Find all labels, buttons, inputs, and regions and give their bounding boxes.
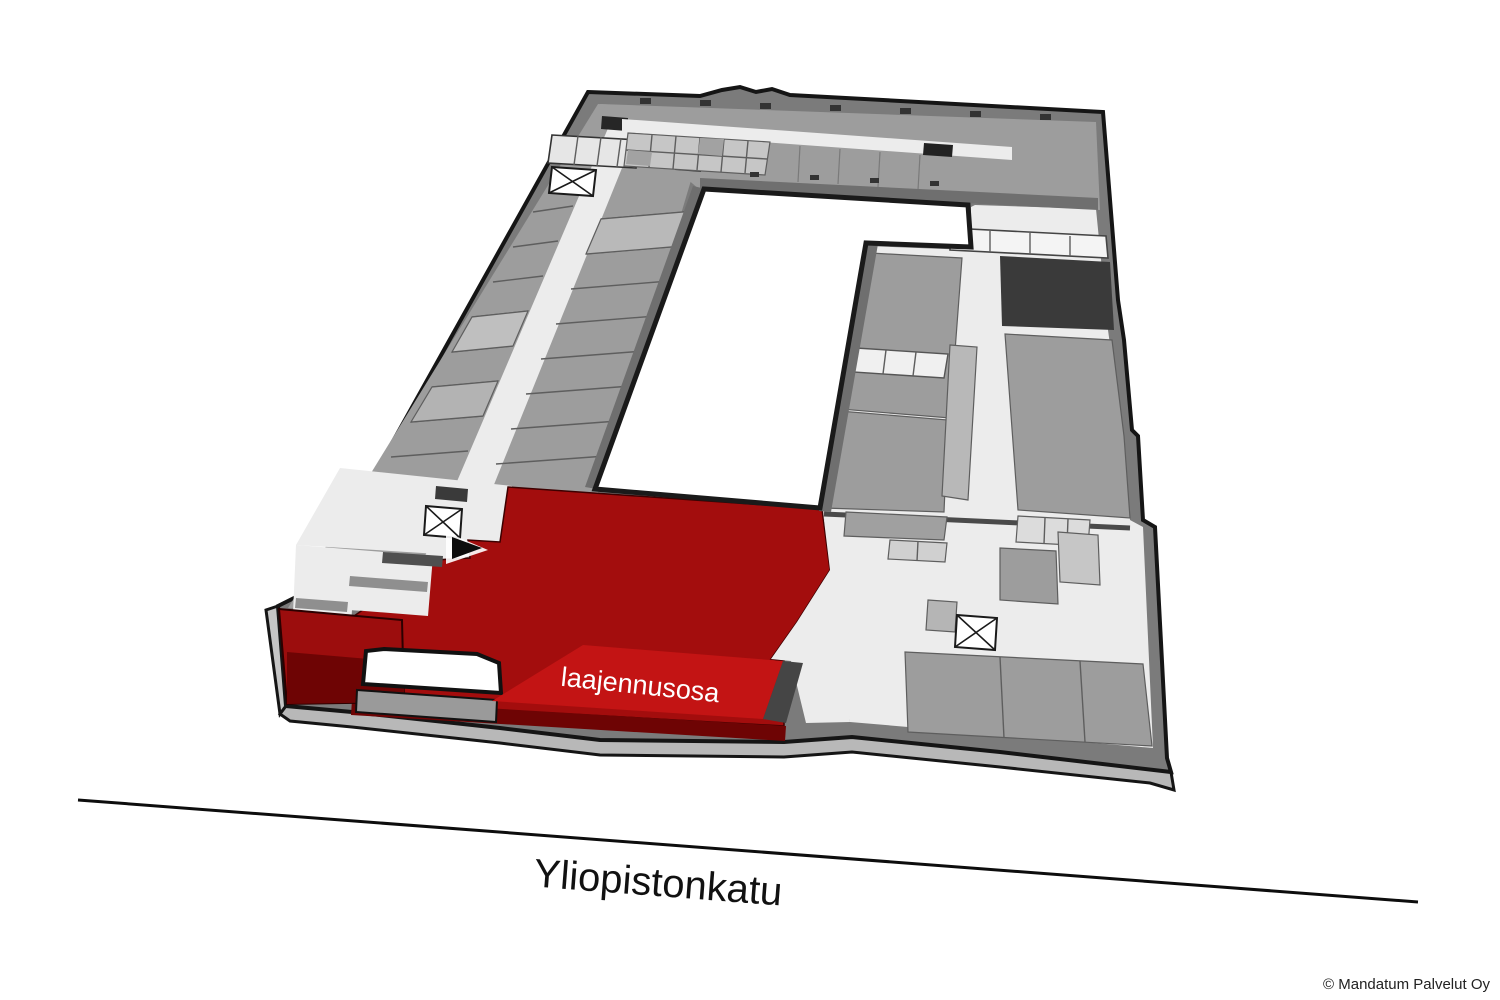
street-group: Yliopistonkatu — [78, 800, 1418, 914]
floor-plan-page: laajennusosa Yliopistonkatu © — [0, 0, 1500, 1000]
floor-plan-canvas: laajennusosa Yliopistonkatu © — [0, 0, 1500, 1000]
cluster-cell-med-1 — [698, 138, 724, 156]
right-room-east — [1005, 334, 1130, 518]
right-block-1 — [1000, 548, 1058, 604]
dark-room — [1000, 256, 1114, 330]
elevator-icon-1 — [549, 167, 596, 196]
courtyard-hole-small — [363, 649, 501, 693]
right-block-center — [844, 512, 947, 540]
street-label: Yliopistonkatu — [532, 852, 784, 915]
elevator-side-cell — [926, 600, 957, 632]
dark-slab-top — [923, 143, 953, 157]
cluster-cell-med-2 — [626, 150, 652, 166]
right-bottom-slab — [905, 652, 1152, 746]
right-block-2 — [1058, 532, 1100, 585]
elevator-icon-3 — [955, 615, 997, 650]
copyright-label: © Mandatum Palvelut Oy — [1323, 976, 1490, 993]
right-white-cells — [853, 348, 948, 378]
